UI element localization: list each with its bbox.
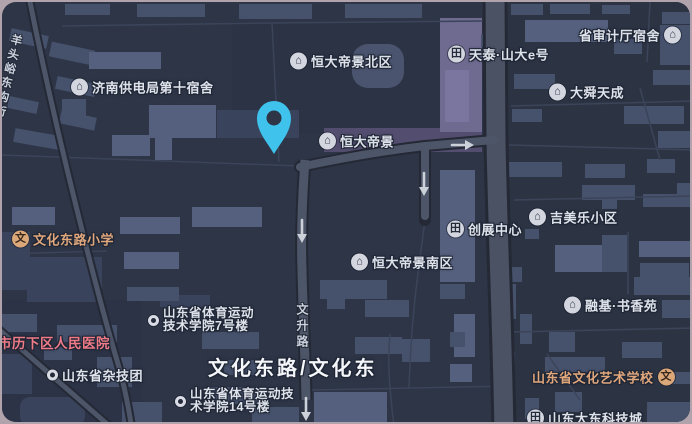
poi-shandong-culture-art-school[interactable]: 山东省文化艺术学校 文 xyxy=(532,368,675,387)
poi-shandong-acrobatic-troupe[interactable]: 山东省杂技团 xyxy=(47,366,143,385)
school-icon: 文 xyxy=(658,369,675,386)
house-icon: ⌂ xyxy=(290,53,307,70)
building-icon: 田 xyxy=(447,221,464,238)
poi-dashun-tiancheng[interactable]: ⌂ 大舜天成 xyxy=(549,83,624,102)
poi-label: 山东省体育运动技术学院7号楼 xyxy=(163,307,254,333)
house-icon: ⌂ xyxy=(664,27,681,44)
school-icon: 文 xyxy=(12,231,29,248)
house-icon: ⌂ xyxy=(319,133,336,150)
poi-wenhua-east-road-primary-school[interactable]: 文 文化东路小学 xyxy=(12,230,114,249)
road-label-wensheng-road: 文升路 xyxy=(294,303,311,351)
poi-chuangzhan-center[interactable]: 田 创展中心 xyxy=(447,220,522,239)
poi-sports-institute-building-7[interactable]: 山东省体育运动技术学院7号楼 xyxy=(148,307,254,333)
road-label-wenhua-east-road: 文化东路/文化东 xyxy=(208,352,378,381)
poi-hengda-dijing-north[interactable]: ⌂ 恒大帝景北区 xyxy=(290,52,392,71)
poi-label: 吉美乐小区 xyxy=(550,208,618,227)
poi-label: 恒大帝景北区 xyxy=(311,52,392,71)
dot-icon xyxy=(47,370,58,381)
house-icon: ⌂ xyxy=(71,79,88,96)
poi-label: 天泰·山大e号 xyxy=(469,45,549,64)
poi-label: 恒大帝景南区 xyxy=(372,253,453,272)
poi-label: 山东大东科技城 xyxy=(548,409,643,423)
screenshot-root: { "colors": { "frame": "#b1a3ab", "map_b… xyxy=(0,0,692,424)
poi-label: 山东省体育运动技术学院14号楼 xyxy=(190,388,294,414)
poi-hengda-dijing-south[interactable]: ⌂ 恒大帝景南区 xyxy=(351,253,453,272)
house-icon: ⌂ xyxy=(549,84,566,101)
map-canvas[interactable]: 羊头峪东沟街 文升路 文化东路/文化东 ⌂ 济南供电局第十宿舍 ⌂ 恒大帝景北区… xyxy=(2,2,690,422)
poi-tiantai-shanda-e[interactable]: 田 天泰·山大e号 xyxy=(448,45,549,64)
poi-audit-office-dorm[interactable]: 省审计厅宿舍 ⌂ xyxy=(579,26,681,45)
poi-label: 山东省文化艺术学校 xyxy=(532,368,654,387)
poi-label: 融基·书香苑 xyxy=(585,296,657,315)
poi-label: 山东省杂技团 xyxy=(62,366,143,385)
poi-label: 大舜天成 xyxy=(570,83,624,102)
building-icon: 田 xyxy=(448,46,465,63)
building-icon: 田 xyxy=(527,410,544,423)
poi-label: 文化东路小学 xyxy=(33,230,114,249)
poi-label: 济南供电局第十宿舍 xyxy=(92,78,214,97)
poi-label: 省审计厅宿舍 xyxy=(579,26,660,45)
poi-label: 市历下区人民医院 xyxy=(2,332,110,352)
poi-shandong-dadong-tech-city[interactable]: 田 山东大东科技城 xyxy=(527,409,643,423)
poi-hengda-dijing[interactable]: ⌂ 恒大帝景 xyxy=(319,132,394,151)
dot-icon xyxy=(148,315,159,326)
house-icon: ⌂ xyxy=(529,209,546,226)
poi-jimeile-community[interactable]: ⌂ 吉美乐小区 xyxy=(529,208,618,227)
location-pin[interactable] xyxy=(254,98,294,158)
poi-rongji-shuxiangyuan[interactable]: ⌂ 融基·书香苑 xyxy=(564,296,657,315)
poi-label: 恒大帝景 xyxy=(340,132,394,151)
poi-sports-institute-building-14[interactable]: 山东省体育运动技术学院14号楼 xyxy=(175,388,294,414)
poi-label: 创展中心 xyxy=(468,220,522,239)
house-icon: ⌂ xyxy=(564,297,581,314)
house-icon: ⌂ xyxy=(351,254,368,271)
poi-lixia-district-peoples-hospital[interactable]: 市历下区人民医院 xyxy=(2,332,110,352)
poi-jinan-power-bureau-dorm[interactable]: ⌂ 济南供电局第十宿舍 xyxy=(71,78,214,97)
dot-icon xyxy=(175,396,186,407)
